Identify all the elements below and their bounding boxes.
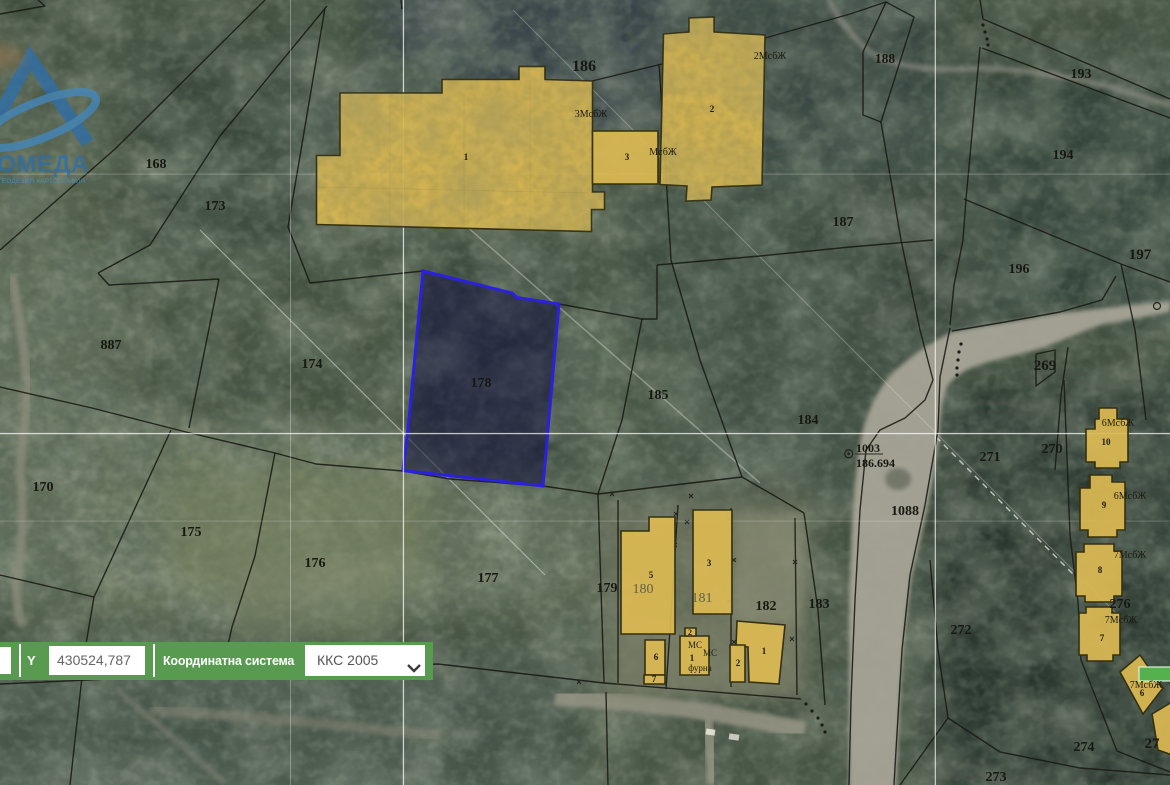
svg-text:181: 181: [692, 591, 713, 606]
svg-text:7МсбЖ: 7МсбЖ: [1130, 680, 1163, 691]
svg-text:185: 185: [648, 388, 669, 403]
svg-text:179: 179: [597, 581, 618, 596]
svg-text:7МсбЖ: 7МсбЖ: [1105, 615, 1138, 626]
svg-text:269: 269: [1034, 358, 1057, 374]
svg-text:1088: 1088: [891, 504, 919, 519]
svg-text:6МсбЖ: 6МсбЖ: [1114, 491, 1147, 502]
svg-text:6: 6: [1140, 688, 1145, 698]
svg-text:7: 7: [652, 674, 657, 684]
svg-text:2МсбЖ: 2МсбЖ: [754, 51, 787, 62]
svg-text:175: 175: [181, 525, 202, 540]
svg-text:271: 271: [980, 450, 1001, 465]
svg-text:274: 274: [1074, 740, 1095, 755]
svg-text:188: 188: [875, 51, 896, 66]
svg-text:272: 272: [951, 623, 972, 638]
svg-text:фурна: фурна: [688, 663, 711, 673]
svg-text:174: 174: [302, 357, 323, 372]
svg-text:1: 1: [464, 152, 469, 162]
svg-text:187: 187: [833, 215, 854, 230]
svg-text:10: 10: [1102, 437, 1112, 447]
svg-text:194: 194: [1053, 148, 1074, 163]
svg-text:196: 196: [1009, 262, 1030, 277]
svg-text:27: 27: [1145, 736, 1161, 752]
svg-text:173: 173: [205, 199, 226, 214]
svg-text:176: 176: [305, 556, 326, 571]
svg-text:РОМЕДА: РОМЕДА: [0, 151, 89, 178]
svg-text:МС: МС: [688, 640, 702, 650]
svg-text:3: 3: [625, 152, 630, 162]
svg-text:184: 184: [798, 413, 819, 428]
svg-text:1003: 1003: [856, 441, 880, 455]
svg-text:180: 180: [633, 582, 654, 597]
svg-text:7: 7: [1100, 633, 1105, 643]
svg-text:168: 168: [146, 157, 167, 172]
svg-text:186: 186: [572, 58, 596, 75]
svg-text:270: 270: [1042, 442, 1063, 457]
svg-text:193: 193: [1071, 67, 1092, 82]
svg-text:ГЕОДЕЗИЯ КАРТОГРАФИЯ: ГЕОДЕЗИЯ КАРТОГРАФИЯ: [0, 178, 85, 185]
svg-text:273: 273: [986, 770, 1007, 785]
svg-text:6: 6: [654, 652, 659, 662]
svg-text:887: 887: [101, 338, 122, 353]
svg-text:5: 5: [649, 570, 654, 580]
svg-text:2: 2: [710, 104, 715, 114]
svg-text:183: 183: [809, 597, 830, 612]
svg-text:3МсбЖ: 3МсбЖ: [575, 109, 608, 120]
svg-text:6МсбЖ: 6МсбЖ: [1102, 418, 1135, 429]
svg-text:170: 170: [33, 480, 54, 495]
svg-text:1: 1: [690, 653, 695, 663]
svg-text:1: 1: [762, 646, 767, 656]
svg-text:7МсбЖ: 7МсбЖ: [1114, 550, 1147, 561]
svg-text:177: 177: [478, 571, 499, 586]
svg-text:186.694: 186.694: [856, 456, 895, 470]
svg-text:182: 182: [756, 599, 777, 614]
svg-text:9: 9: [1102, 500, 1107, 510]
svg-text:178: 178: [471, 376, 492, 391]
svg-text:МС: МС: [703, 648, 717, 658]
svg-text:8: 8: [1098, 565, 1103, 575]
svg-text:276: 276: [1110, 597, 1131, 612]
svg-text:3: 3: [707, 558, 712, 568]
svg-text:2: 2: [736, 658, 741, 668]
svg-text:197: 197: [1129, 247, 1152, 263]
svg-text:МсбЖ: МсбЖ: [649, 147, 677, 158]
svg-text:2: 2: [688, 628, 692, 637]
